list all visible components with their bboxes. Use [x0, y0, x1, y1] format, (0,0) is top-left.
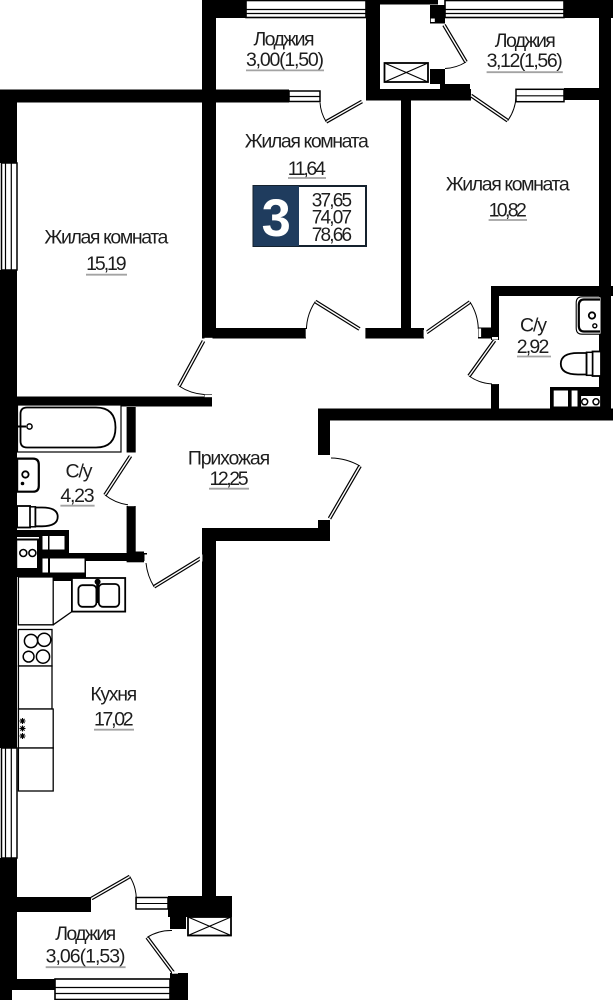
svg-text:11,64: 11,64	[288, 158, 326, 180]
svg-text:15,19: 15,19	[86, 253, 126, 275]
svg-text:3,12(1,56): 3,12(1,56)	[487, 50, 563, 72]
svg-text:78,66: 78,66	[312, 225, 352, 246]
svg-text:17,02: 17,02	[94, 709, 134, 731]
svg-text:Жилая комната: Жилая комната	[44, 227, 168, 249]
svg-text:4,23: 4,23	[60, 485, 94, 507]
svg-text:Прихожая: Прихожая	[188, 448, 270, 470]
svg-text:Кухня: Кухня	[90, 683, 137, 705]
svg-text:3,06(1,53): 3,06(1,53)	[46, 946, 126, 968]
svg-text:3,00(1,50): 3,00(1,50)	[246, 49, 324, 71]
svg-text:Лоджия: Лоджия	[55, 923, 116, 945]
svg-text:10,82: 10,82	[489, 200, 527, 222]
svg-text:Лоджия: Лоджия	[254, 28, 315, 50]
svg-text:3: 3	[262, 189, 291, 248]
svg-text:Лоджия: Лоджия	[495, 30, 556, 52]
svg-text:С/у: С/у	[66, 461, 93, 483]
svg-text:2,92: 2,92	[517, 336, 550, 358]
svg-text:12,25: 12,25	[209, 468, 248, 490]
svg-text:Жилая комната: Жилая комната	[245, 131, 369, 153]
svg-text:С/у: С/у	[520, 315, 547, 337]
svg-text:Жилая комната: Жилая комната	[446, 173, 570, 195]
